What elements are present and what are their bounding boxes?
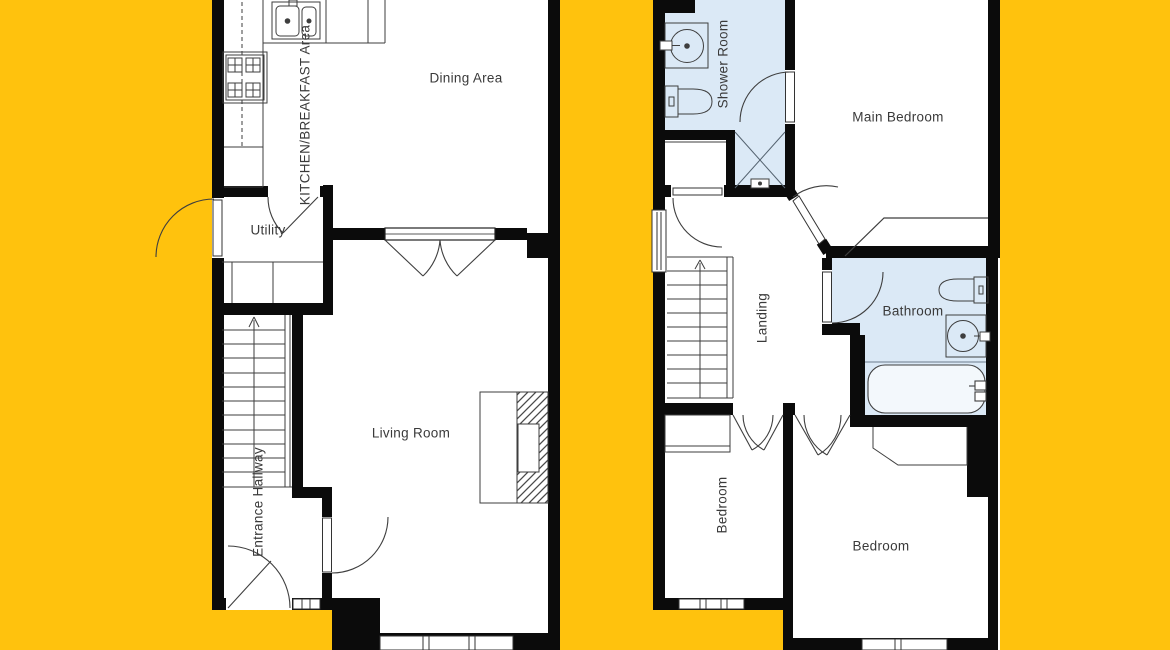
bedroom1-window (679, 599, 744, 609)
wall-right (548, 0, 560, 650)
wall-bathroom-step-h (822, 323, 860, 335)
wall-bathroom-top (826, 246, 1000, 258)
first-floor-plan (652, 0, 1000, 650)
wall-hall-right-lower (322, 573, 332, 598)
door-opening (795, 403, 850, 415)
wall-divider-right (495, 228, 527, 240)
window-frame (380, 636, 513, 650)
wall-top-chunk (656, 0, 695, 13)
bathtub-outline (868, 365, 985, 413)
door-leaf (673, 188, 722, 195)
window-frame (293, 599, 320, 609)
bathroom-floor (860, 323, 986, 362)
basin-tap (980, 332, 990, 341)
living-room-window (380, 636, 513, 650)
room-label-main-bedroom: Main Bedroom (852, 110, 943, 124)
wall-hall-right-upper (322, 498, 332, 517)
room-label-dining-area: Dining Area (429, 71, 502, 85)
wall-utility-right (323, 185, 333, 315)
window-frame (862, 639, 947, 650)
room-label-bathroom: Bathroom (883, 304, 944, 318)
room-label-shower-room: Shower Room (716, 20, 730, 109)
wall-divider-left (333, 228, 385, 240)
fireplace-opening (518, 424, 539, 472)
wall-shower-bottom (653, 130, 735, 140)
bedroom2-window (862, 639, 947, 650)
door-opening (733, 403, 783, 415)
wall-cubicle-left (726, 130, 735, 188)
wall-utility-bottom (213, 303, 333, 315)
door-leaf (213, 200, 222, 256)
floorplan-image: Dining Area KITCHEN/BREAKFAST Area Utili… (0, 0, 1170, 650)
bathtub-tap (975, 392, 986, 401)
wall-stairs-step (292, 487, 332, 498)
hallway-window (293, 599, 320, 609)
sink-drain (307, 19, 311, 23)
wall-bathroom-step-v (850, 335, 865, 417)
room-label-utility: Utility (250, 223, 285, 237)
shower-drain (758, 182, 762, 186)
wall-divider-step-block (527, 233, 548, 258)
room-label-entrance-hallway: Entrance Hallway (251, 447, 265, 557)
room-label-landing: Landing (755, 293, 769, 343)
wall-landing-bottom-left (653, 403, 733, 415)
bathtub (868, 365, 986, 413)
floorplan-drawing (0, 0, 1170, 650)
window-frame (652, 210, 666, 272)
wall-mainbed-right (988, 0, 1000, 258)
wall-between-bedrooms (783, 403, 793, 650)
bathtub-tap (975, 381, 986, 390)
room-label-bedroom-back: Bedroom (853, 539, 910, 553)
room-label-bedroom-front: Bedroom (715, 477, 729, 534)
room-label-living-room: Living Room (372, 426, 450, 440)
door-leaf (823, 272, 832, 322)
basin-drain (685, 44, 690, 49)
wall-bedroom2-right-upper (967, 415, 998, 497)
room-label-kitchen-breakfast: KITCHEN/BREAKFAST Area (298, 25, 312, 205)
window-frame (679, 599, 744, 609)
landing-window (652, 210, 666, 272)
sink-drain (285, 19, 290, 24)
fireplace (480, 392, 548, 503)
basin-drain (961, 334, 966, 339)
basin-tap (660, 41, 672, 50)
ground-floor-plan (156, 0, 560, 650)
wall-bedroom2-right-lower (988, 497, 998, 650)
door-leaf (323, 518, 332, 572)
door-leaf (786, 72, 795, 122)
wall-stairs-right (292, 315, 303, 487)
wall-left (653, 0, 665, 610)
